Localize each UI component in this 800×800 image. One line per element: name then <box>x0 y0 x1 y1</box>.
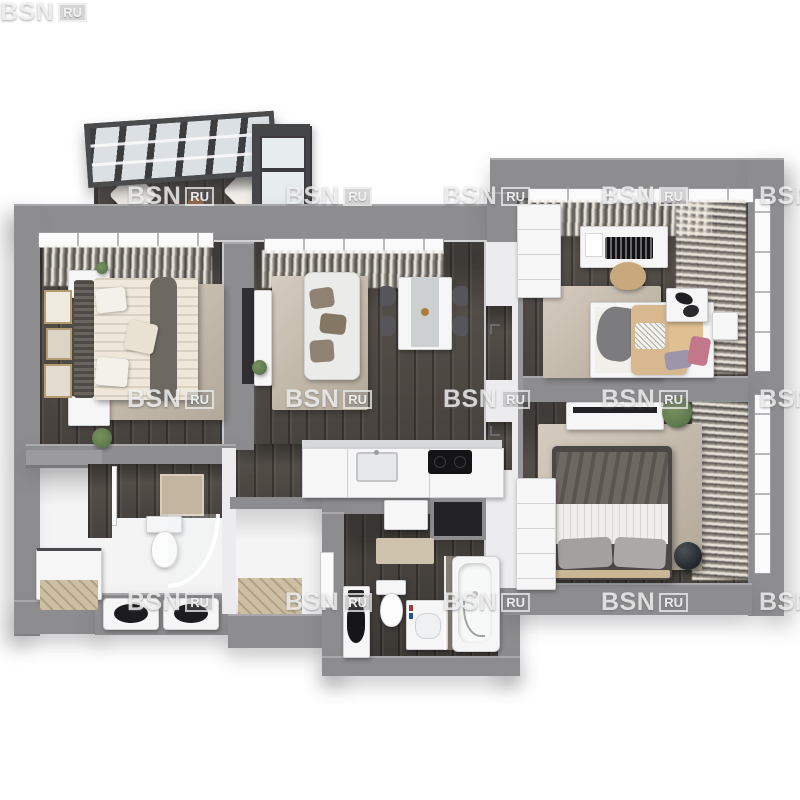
table-decor <box>421 308 429 316</box>
bedroom1-nightstand-bottom <box>68 396 110 426</box>
vanity-sink-bowl <box>114 604 148 623</box>
burner <box>454 456 466 468</box>
watermark-ru-badge: RU <box>343 187 372 206</box>
dining-table <box>398 277 452 350</box>
counter-seam <box>347 449 348 497</box>
door-swing-mark <box>490 426 500 436</box>
dining-chair <box>380 286 396 306</box>
bathroom-vanity <box>406 600 448 650</box>
bathroom-bottom-wall <box>322 656 520 676</box>
balcony-glass-roof <box>84 111 278 188</box>
bathtub <box>452 556 500 652</box>
roof-mullion <box>92 151 272 167</box>
bedroom2-console <box>566 402 664 430</box>
kids-pink-pillow <box>687 335 712 366</box>
hallway-doormat <box>238 578 302 614</box>
bedroom1-plant-small <box>96 262 108 274</box>
kids-wardrobe <box>517 204 561 298</box>
bathroom-toilet-bowl <box>380 593 403 627</box>
wall-picture-frame <box>44 364 72 398</box>
wc-hallway-wall <box>222 448 236 614</box>
toiletry-bottle <box>409 613 413 619</box>
vanity-basin <box>415 613 441 639</box>
bathroom-shelf <box>384 500 428 530</box>
hat-decor <box>682 303 700 318</box>
wall-picture-frame <box>46 328 72 360</box>
roof-mullion <box>90 132 270 148</box>
bath-mat <box>376 538 434 564</box>
wc-picture-tile <box>160 474 204 516</box>
bedroom1-plant <box>92 428 112 448</box>
bathroom-door-leaf <box>320 552 334 608</box>
entry-wood-panel <box>88 464 112 538</box>
hallway-bottom-wall <box>228 614 336 648</box>
kids-bedroom2-divider-wall <box>517 376 748 402</box>
bed2-blanket <box>556 452 668 504</box>
bed2-bench <box>554 570 670 578</box>
bed2-pillow <box>557 537 612 570</box>
console-tv-bar <box>573 407 657 413</box>
watermark: BSN RU <box>0 0 87 24</box>
washer-panel <box>348 590 364 597</box>
wall-picture-frame <box>44 290 72 324</box>
living-plant <box>252 360 267 375</box>
bed1-pillow <box>95 357 129 388</box>
bed1-accent-pillow <box>123 319 159 355</box>
toiletry-bottle <box>409 605 413 611</box>
right-wall-window-lower <box>754 394 771 574</box>
washer-door <box>347 601 365 643</box>
bedroom2-dresser <box>516 478 556 590</box>
faucet <box>374 450 379 455</box>
bed1-pillow <box>95 286 127 313</box>
balcony-window-pane <box>260 170 306 206</box>
desk-papers <box>585 233 603 257</box>
desk-chair <box>610 262 646 290</box>
laptop <box>605 237 653 259</box>
bed1-headboard <box>74 280 94 398</box>
right-block-left-upper-wall <box>487 192 517 246</box>
sofa-cushion <box>309 286 336 309</box>
kitchen-sink <box>356 452 398 482</box>
bedroom2-bed <box>552 446 672 580</box>
bathroom-mirror-niche <box>430 498 486 540</box>
hallway-step-wall <box>230 497 322 509</box>
watermark-ru-badge: RU <box>58 3 87 22</box>
burner <box>434 456 446 468</box>
dining-chair <box>452 316 468 336</box>
sofa-cushion <box>319 313 347 336</box>
wc-vanity-inset <box>163 598 219 630</box>
bathtub-drain <box>472 591 478 597</box>
sofa-cushion <box>309 339 334 363</box>
bed2-pillow <box>613 537 666 570</box>
entry-doormat <box>40 580 98 610</box>
balcony-window-pane <box>260 136 306 170</box>
kids-radiator <box>712 312 738 340</box>
cooktop <box>428 450 472 474</box>
door-swing-mark <box>490 324 500 334</box>
kitchen-backsplash <box>302 440 502 448</box>
right-wall-window-upper <box>754 198 771 372</box>
washing-machine <box>343 586 370 658</box>
dining-chair <box>380 316 396 336</box>
bedroom2-plant <box>662 396 692 428</box>
wc-vanity-inset <box>103 598 159 630</box>
kids-striped-pillow <box>635 323 665 349</box>
kids-nightstand <box>666 288 708 322</box>
floorplan-render: BSN RU BSN RU BSN RU BSN RU BSN RU BSN R… <box>0 0 800 800</box>
living-wall-wood-accent <box>486 306 512 380</box>
bedroom2-pouf <box>674 542 702 570</box>
dining-chair <box>452 286 468 306</box>
kitchen-counter <box>302 448 504 498</box>
watermark-brand: BSN <box>0 0 54 24</box>
vanity-sink-bowl <box>174 604 208 623</box>
